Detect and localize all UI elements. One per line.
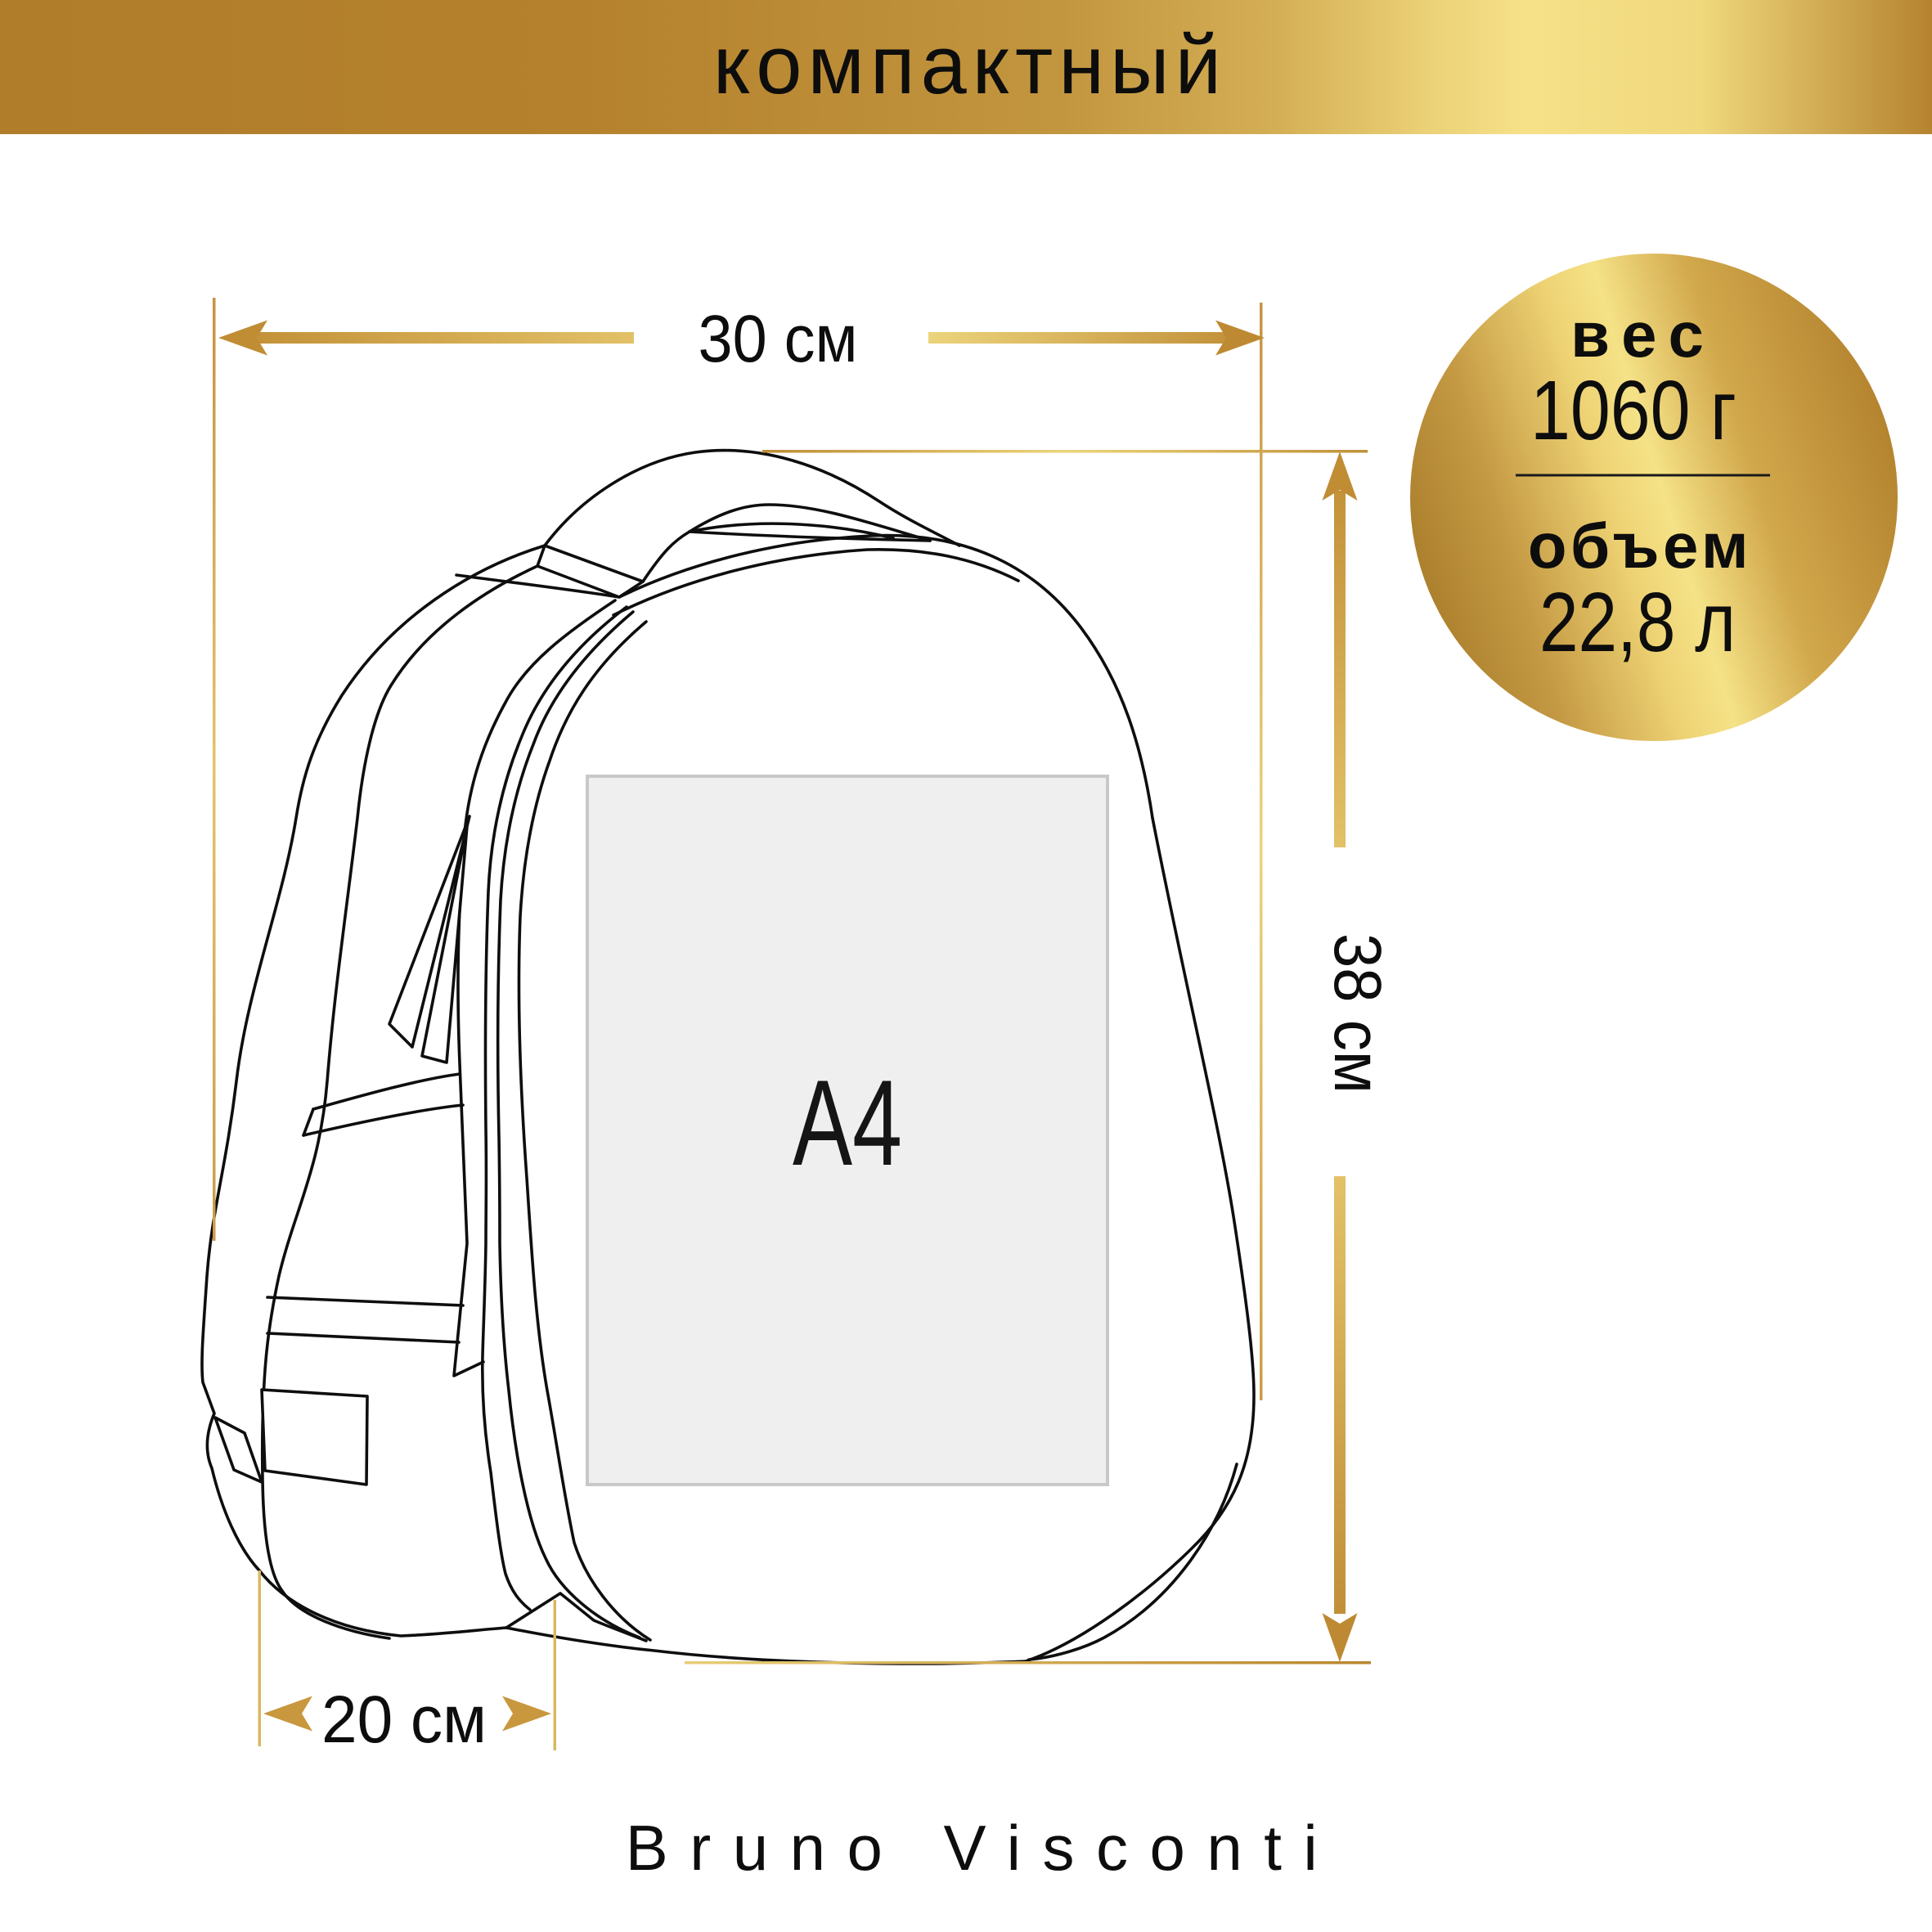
svg-text:22,8 л: 22,8 л: [1539, 575, 1736, 669]
svg-text:A4: A4: [793, 1054, 902, 1191]
svg-text:1060 г: 1060 г: [1530, 363, 1737, 457]
svg-text:вес: вес: [1570, 299, 1716, 371]
svg-text:объем: объем: [1528, 510, 1752, 582]
svg-text:30 см: 30 см: [699, 302, 858, 376]
svg-text:компактный: компактный: [713, 20, 1227, 111]
svg-text:Bruno Visconti: Bruno Visconti: [626, 1812, 1340, 1884]
svg-text:20 см: 20 см: [321, 1683, 487, 1757]
svg-text:38 см: 38 см: [1320, 933, 1395, 1094]
